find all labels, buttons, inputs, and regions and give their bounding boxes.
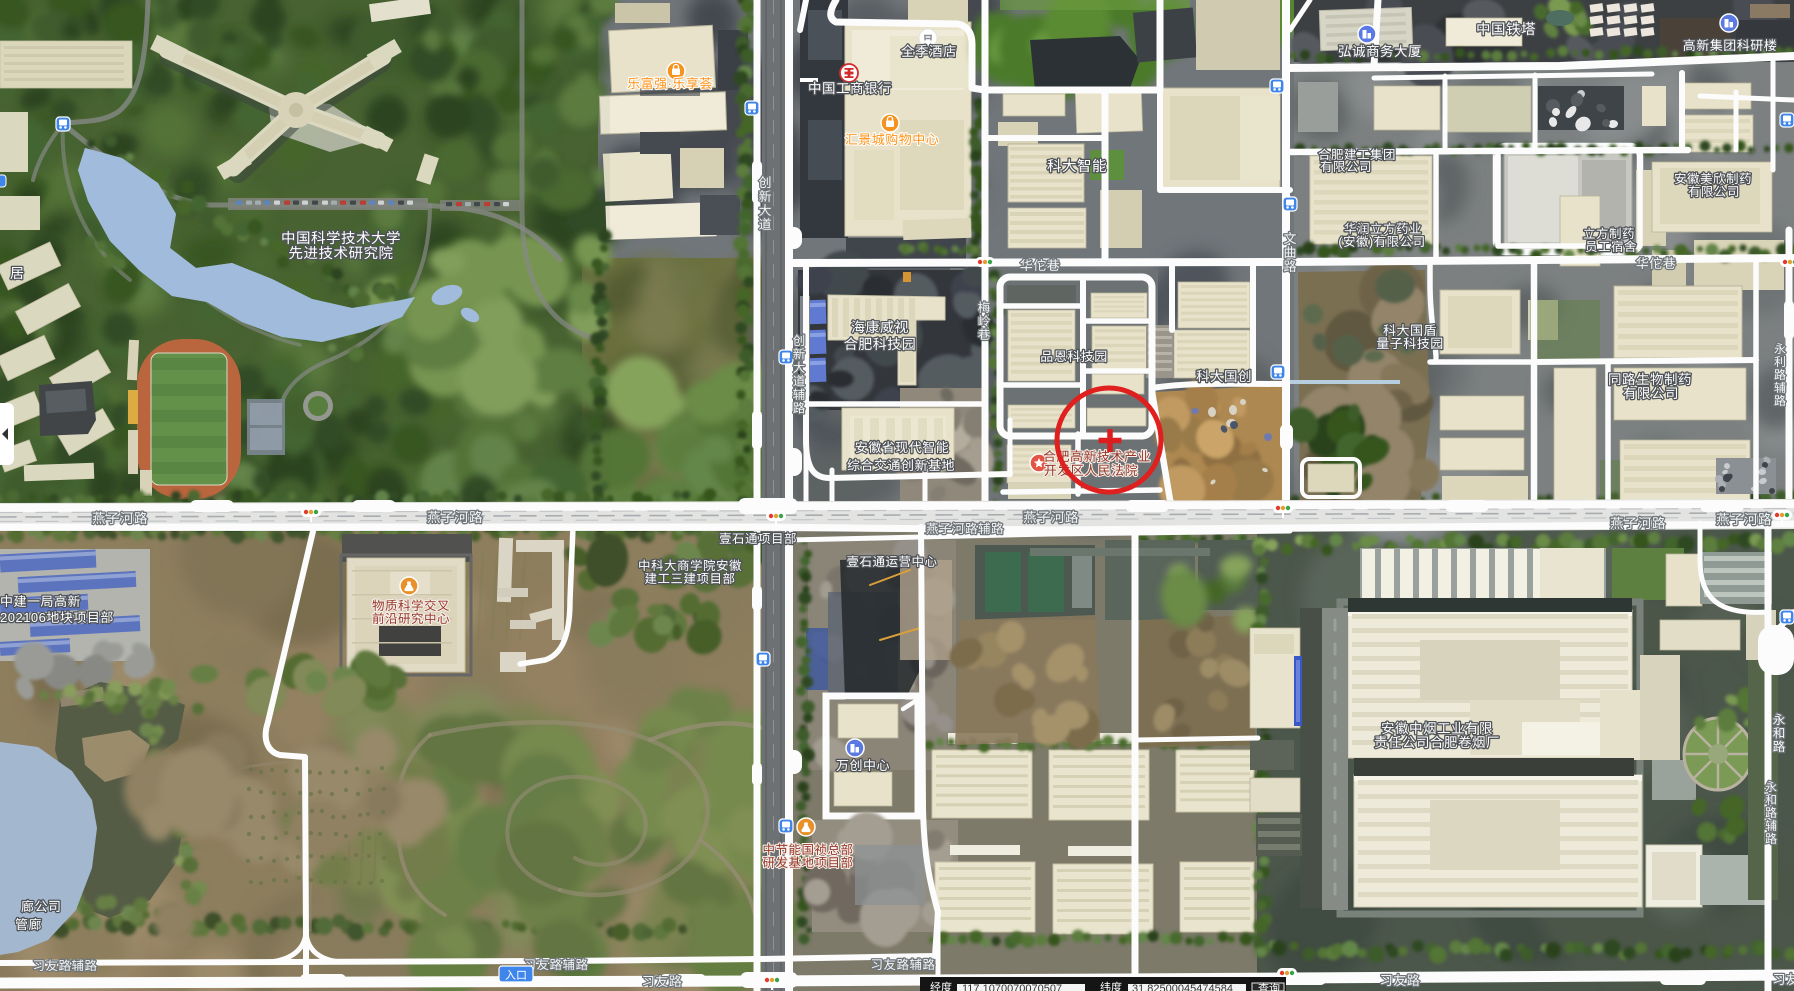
svg-text:(安徽)有限公司: (安徽)有限公司 [1338, 231, 1425, 250]
svg-text:燕子河路: 燕子河路 [1716, 508, 1772, 528]
svg-text:壹石通运营中心: 壹石通运营中心 [846, 551, 937, 570]
svg-text:管廊: 管廊 [15, 914, 42, 933]
svg-text:品恩科技园: 品恩科技园 [1040, 346, 1108, 365]
svg-text:习友路辅路: 习友路辅路 [870, 954, 935, 973]
svg-text:31.82500045474584: 31.82500045474584 [1132, 980, 1233, 991]
svg-text:117.1070070070507: 117.1070070070507 [962, 980, 1062, 991]
svg-text:202106地块项目部: 202106地块项目部 [0, 607, 114, 626]
svg-text:研发基地项目部: 研发基地项目部 [762, 852, 853, 871]
svg-text:员工宿舍: 员工宿舍 [1585, 236, 1637, 255]
svg-text:习友路辅路: 习友路辅路 [32, 955, 97, 974]
svg-text:习友: 习友 [1772, 969, 1794, 988]
svg-text:有限公司: 有限公司 [1688, 181, 1740, 200]
svg-text:永和路: 永和路 [1773, 709, 1786, 755]
svg-text:创新大道辅路: 创新大道辅路 [793, 330, 806, 417]
svg-text:华佗巷: 华佗巷 [1636, 253, 1677, 272]
svg-text:入口: 入口 [505, 967, 527, 983]
svg-text:综合交通创新基地: 综合交通创新基地 [847, 455, 955, 474]
svg-text:开发区人民法院: 开发区人民法院 [1044, 460, 1139, 479]
svg-text:有限公司: 有限公司 [1320, 156, 1372, 175]
svg-text:文曲路: 文曲路 [1283, 228, 1296, 275]
svg-text:科大国创: 科大国创 [1196, 365, 1252, 385]
svg-text:量子科技园: 量子科技园 [1376, 333, 1444, 352]
svg-text:查询: 查询 [1258, 980, 1280, 991]
svg-text:壹石通项目部: 壹石通项目部 [719, 528, 797, 547]
svg-text:安徽省现代智能: 安徽省现代智能 [855, 437, 950, 456]
svg-text:永利路辅路: 永利路辅路 [1774, 340, 1786, 409]
svg-text:燕子河路: 燕子河路 [427, 506, 483, 526]
svg-text:科大智能: 科大智能 [1047, 155, 1107, 176]
svg-text:燕子河路: 燕子河路 [92, 507, 148, 527]
svg-text:高新集团科研楼: 高新集团科研楼 [1683, 35, 1778, 54]
svg-text:习友路: 习友路 [642, 971, 683, 990]
svg-text:中国工商银行: 中国工商银行 [808, 77, 892, 97]
svg-text:燕子河路: 燕子河路 [1610, 512, 1666, 532]
svg-text:创新大道: 创新大道 [758, 172, 771, 233]
svg-text:建工三建项目部: 建工三建项目部 [644, 568, 735, 587]
svg-text:习友路: 习友路 [1380, 970, 1421, 989]
svg-text:中国铁塔: 中国铁塔 [1476, 18, 1536, 39]
svg-text:梅岭巷: 梅岭巷 [978, 297, 991, 343]
svg-text:永和路辅路: 永和路辅路 [1765, 778, 1777, 847]
svg-text:弘诚商务大厦: 弘诚商务大厦 [1338, 40, 1422, 60]
svg-text:先进技术研究院: 先进技术研究院 [289, 242, 394, 263]
svg-text:有限公司: 有限公司 [1623, 382, 1679, 402]
svg-text:经度: 经度 [930, 979, 952, 991]
svg-text:乐富强·乐享荟: 乐富强·乐享荟 [627, 73, 713, 92]
svg-text:前沿研究中心: 前沿研究中心 [372, 608, 450, 627]
svg-text:廊公司: 廊公司 [21, 896, 62, 915]
svg-text:汇景城购物中心: 汇景城购物中心 [845, 129, 940, 148]
svg-text:合肥科技园: 合肥科技园 [844, 334, 917, 354]
svg-text:居: 居 [10, 263, 25, 283]
svg-text:华佗巷: 华佗巷 [1020, 255, 1061, 274]
svg-text:万创中心: 万创中心 [836, 755, 890, 774]
svg-text:责任公司合肥卷烟厂: 责任公司合肥卷烟厂 [1374, 731, 1500, 751]
svg-text:燕子河路辅路: 燕子河路辅路 [926, 518, 1004, 537]
svg-text:纬度: 纬度 [1100, 979, 1122, 991]
svg-text:全季酒店: 全季酒店 [901, 40, 957, 60]
svg-text:燕子河路: 燕子河路 [1023, 506, 1079, 526]
